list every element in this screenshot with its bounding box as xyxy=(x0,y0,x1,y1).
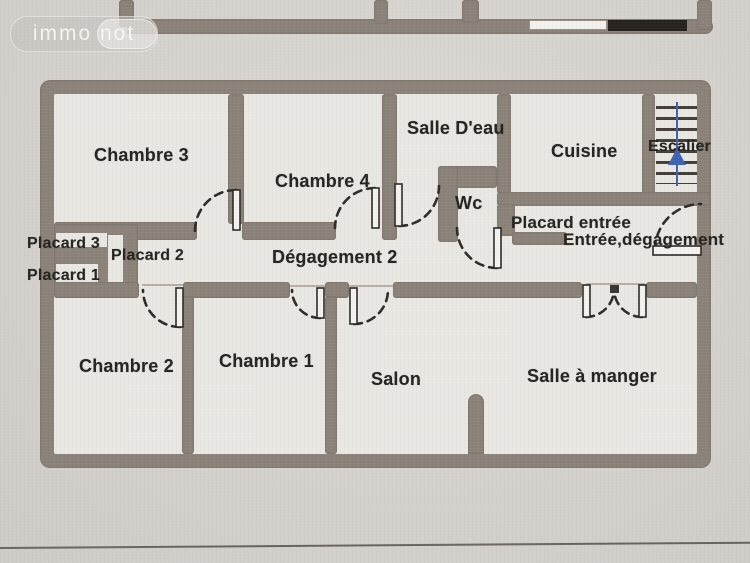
wall-segment xyxy=(183,282,290,298)
window-segment xyxy=(529,20,607,30)
room-label-chambre-2: Chambre 2 xyxy=(79,356,174,377)
room-label-chambre-1: Chambre 1 xyxy=(219,351,314,372)
wall-segment xyxy=(374,0,388,24)
room-label-placard-1: Placard 1 xyxy=(27,267,100,285)
wall-segment xyxy=(646,282,697,298)
room-label-chambre-3: Chambre 3 xyxy=(94,145,189,166)
room-label-salle-a-manger: Salle à manger xyxy=(527,366,657,387)
room-label-placard-2: Placard 2 xyxy=(111,247,184,265)
dark-window-segment xyxy=(608,20,687,31)
room-label-wc: Wc xyxy=(455,193,482,214)
room-label-salon: Salon xyxy=(371,369,421,390)
wall-segment xyxy=(697,0,712,30)
wall-segment xyxy=(462,0,479,23)
wall-segment xyxy=(497,192,711,206)
room-label-cuisine: Cuisine xyxy=(551,141,617,162)
wall-segment xyxy=(512,232,567,245)
wall-segment xyxy=(242,222,336,240)
room-label-entree-degagement: Entrée,dégagement xyxy=(563,230,724,250)
wall-segment xyxy=(393,282,582,298)
scanned-floor-plan: Chambre 3 Chambre 4 Salle D'eau Cuisine … xyxy=(0,0,750,563)
room-label-placard-3: Placard 3 xyxy=(27,235,100,253)
watermark-text: immo not xyxy=(11,17,157,51)
scan-line xyxy=(0,542,750,549)
wall-segment xyxy=(228,94,244,224)
watermark: immo not xyxy=(10,16,158,52)
wall-segment xyxy=(382,94,397,240)
room-label-degagement-2: Dégagement 2 xyxy=(272,247,397,268)
room-label-salle-deau: Salle D'eau xyxy=(407,118,505,139)
room-label-escalier: Escalier xyxy=(648,138,711,156)
wall-segment xyxy=(182,296,194,454)
wall-segment xyxy=(468,394,484,454)
wall-segment xyxy=(497,94,511,194)
wall-segment xyxy=(325,296,337,454)
room-label-chambre-4: Chambre 4 xyxy=(275,171,370,192)
